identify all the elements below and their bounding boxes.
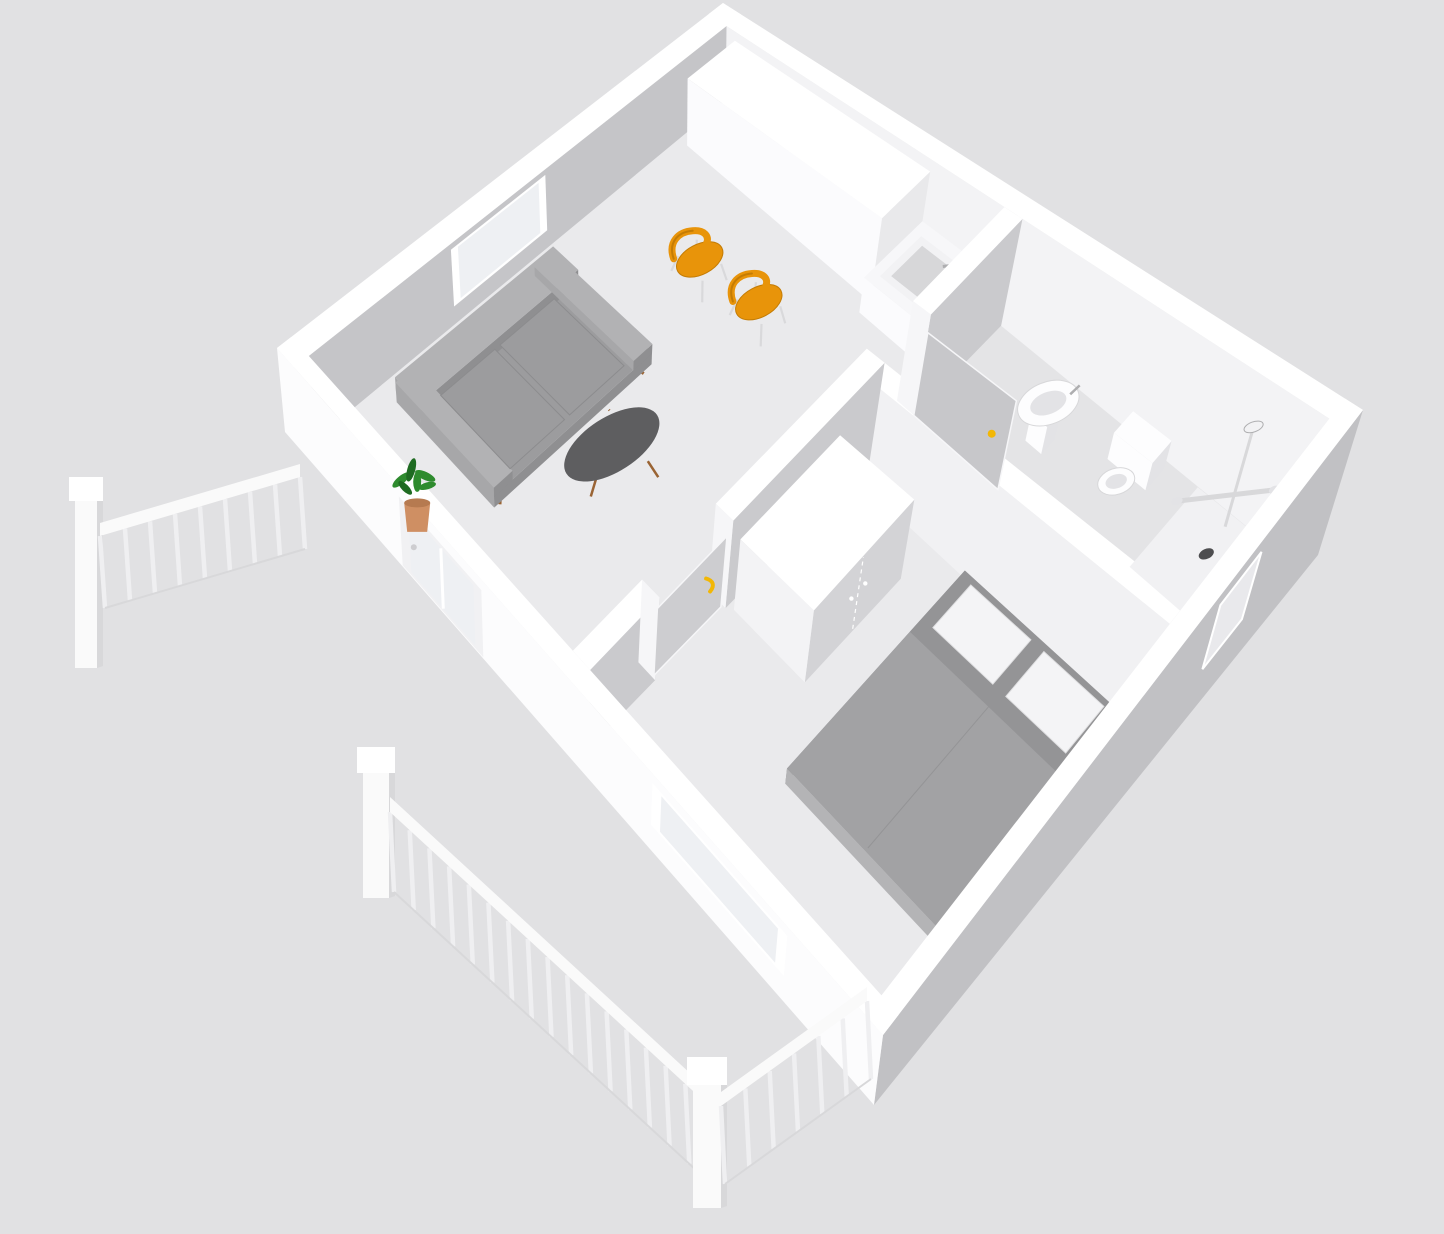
front-balcony-railing-a-baluster-2 bbox=[410, 830, 414, 910]
front-balcony-railing-a-baluster-5 bbox=[469, 885, 473, 965]
balcony-door-handle[interactable] bbox=[411, 544, 417, 550]
left-balcony-railing-baluster-4 bbox=[175, 514, 180, 586]
front-balcony-railing-a-baluster-6 bbox=[488, 903, 492, 983]
front-balcony-railing-a-baluster-8 bbox=[528, 939, 532, 1019]
front-balcony-railing-a-baluster-12 bbox=[607, 1011, 611, 1091]
left-balcony-railing-baluster-5 bbox=[200, 507, 205, 579]
front-balcony-post-corner-body[interactable] bbox=[693, 1066, 721, 1208]
left-balcony-railing-baluster-7 bbox=[250, 492, 255, 564]
plant-pot-rim bbox=[404, 498, 430, 507]
wardrobe-handle-1 bbox=[863, 581, 867, 585]
front-balcony-railing-a-baluster-13 bbox=[626, 1030, 630, 1110]
front-balcony-railing-a-baluster-10 bbox=[567, 975, 571, 1055]
floorplan-3d-viewport[interactable] bbox=[0, 0, 1444, 1234]
front-balcony-railing-b-baluster-2 bbox=[745, 1089, 749, 1167]
left-balcony-railing-baluster-8 bbox=[275, 484, 280, 556]
plant-leaf-6 bbox=[413, 472, 421, 492]
left-balcony-railing-baluster-9 bbox=[300, 477, 305, 549]
front-balcony-railing-a-baluster-14 bbox=[646, 1048, 650, 1128]
front-balcony-railing-a-baluster-7 bbox=[508, 921, 512, 1001]
coffee-table-leg-1 bbox=[609, 410, 610, 411]
front-balcony-post-left-cap bbox=[357, 747, 395, 773]
bathroom-door-handle[interactable] bbox=[988, 430, 996, 438]
front-balcony-railing-a-baluster-15 bbox=[666, 1066, 670, 1146]
front-balcony-railing-a-baluster-4 bbox=[449, 866, 453, 946]
front-balcony-railing-a-bottom-rail bbox=[394, 892, 709, 1182]
front-balcony-railing-b-baluster-4 bbox=[794, 1054, 798, 1132]
front-balcony-railing-b-baluster-5 bbox=[818, 1036, 822, 1114]
left-balcony-post-body[interactable] bbox=[75, 487, 97, 668]
front-balcony-railing-a-baluster-11 bbox=[587, 993, 591, 1073]
left-balcony-railing-baluster-6 bbox=[225, 499, 230, 571]
wardrobe-handle-2 bbox=[849, 596, 853, 600]
left-balcony-railing-baluster-2 bbox=[125, 529, 130, 601]
floorplan-3d-render[interactable] bbox=[0, 0, 1444, 1234]
front-balcony-railing-a-baluster-9 bbox=[548, 957, 552, 1037]
front-balcony-railing-a-baluster-16 bbox=[685, 1084, 689, 1164]
front-balcony-post-corner-cap bbox=[687, 1057, 727, 1085]
front-balcony-railing-b-baluster-3 bbox=[770, 1071, 774, 1149]
left-balcony-railing-baluster-3 bbox=[150, 521, 155, 593]
chair-2-leg-3 bbox=[761, 324, 762, 347]
front-balcony-railing-a-baluster-3 bbox=[429, 848, 433, 928]
left-balcony-post-cap bbox=[69, 477, 103, 501]
front-balcony-post-left-body[interactable] bbox=[363, 756, 389, 898]
